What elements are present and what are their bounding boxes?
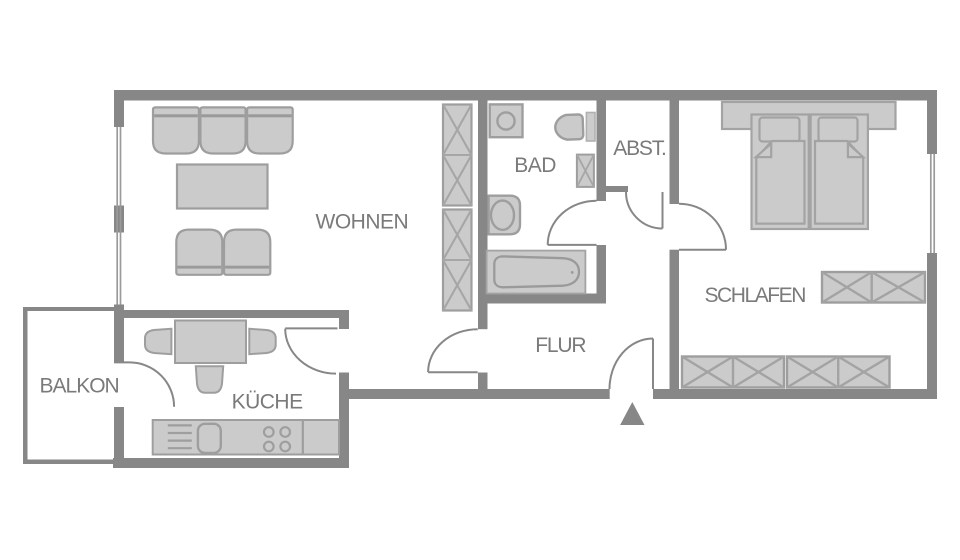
svg-text:SCHLAFEN: SCHLAFEN (705, 284, 806, 307)
svg-text:KÜCHE: KÜCHE (232, 390, 304, 413)
svg-text:WOHNEN: WOHNEN (316, 210, 409, 233)
svg-text:BAD: BAD (514, 154, 556, 177)
svg-text:ABST.: ABST. (613, 137, 665, 160)
svg-text:FLUR: FLUR (535, 334, 586, 357)
svg-text:BALKON: BALKON (40, 375, 119, 398)
